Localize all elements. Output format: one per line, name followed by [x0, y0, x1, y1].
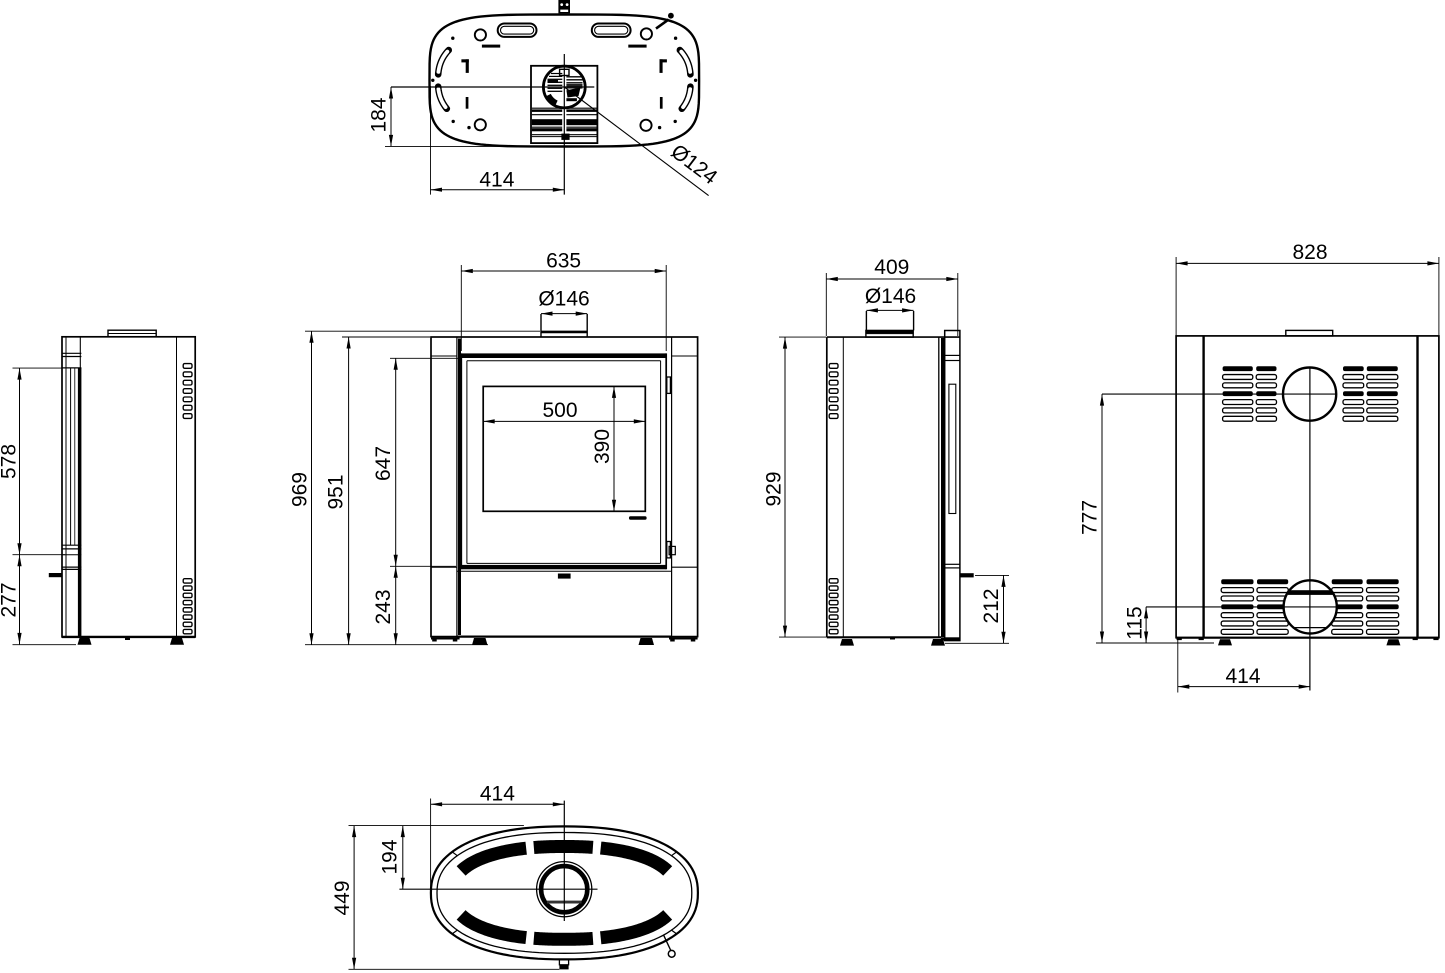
- svg-text:184: 184: [368, 97, 391, 132]
- svg-text:647: 647: [372, 446, 395, 481]
- svg-text:212: 212: [980, 588, 1003, 623]
- svg-text:777: 777: [1079, 500, 1102, 535]
- svg-text:409: 409: [874, 256, 909, 279]
- svg-text:Ø146: Ø146: [865, 285, 916, 308]
- svg-text:951: 951: [325, 474, 348, 509]
- svg-text:Ø146: Ø146: [538, 287, 589, 310]
- svg-text:115: 115: [1123, 606, 1146, 639]
- svg-text:390: 390: [591, 429, 614, 464]
- svg-text:414: 414: [1225, 665, 1260, 688]
- svg-text:277: 277: [0, 582, 21, 617]
- svg-text:969: 969: [288, 472, 311, 507]
- svg-text:414: 414: [480, 783, 515, 806]
- svg-text:414: 414: [479, 168, 514, 191]
- svg-text:929: 929: [762, 471, 785, 506]
- svg-text:578: 578: [0, 444, 21, 479]
- svg-text:500: 500: [542, 399, 577, 422]
- svg-text:449: 449: [331, 880, 354, 915]
- svg-text:194: 194: [379, 839, 402, 874]
- svg-text:828: 828: [1292, 241, 1327, 264]
- svg-text:243: 243: [372, 589, 395, 624]
- svg-text:635: 635: [546, 249, 581, 272]
